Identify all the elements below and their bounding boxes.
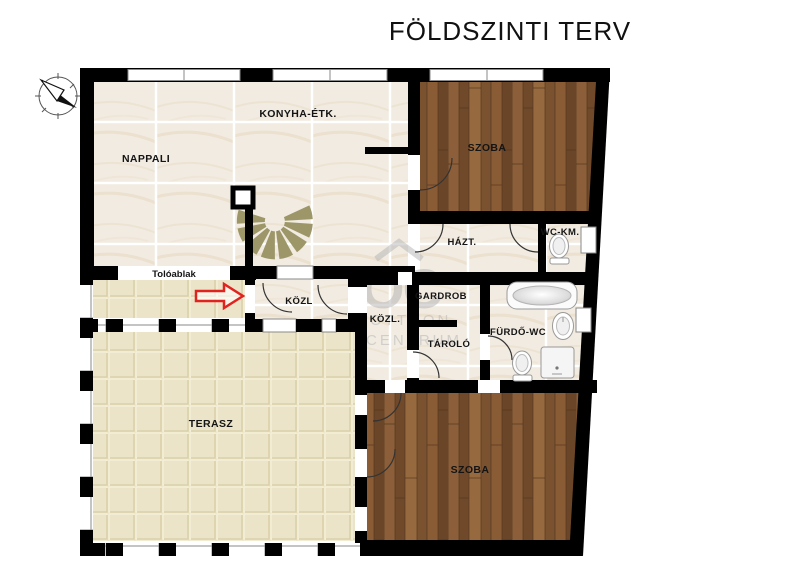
label-terasz: TERASZ (189, 418, 234, 430)
shower-icon (541, 347, 574, 378)
floor-szoba-top (420, 82, 597, 211)
label-hazt: HÁZT. (448, 237, 477, 248)
label-wckm: WC-KM. (541, 227, 580, 238)
label-toloablak: Tolóablak (152, 269, 196, 280)
label-kozl2: KÖZL. (370, 314, 401, 325)
label-szoba-top: SZOBA (468, 142, 507, 154)
toilet-wckm-icon (550, 234, 570, 264)
toilet-furdo-icon (513, 351, 533, 381)
label-szoba-bottom: SZOBA (451, 464, 490, 476)
label-kozl-entry: KÖZL (285, 296, 312, 307)
sink-icon (553, 313, 574, 340)
floor-terasz (92, 331, 355, 541)
floorplan-svg: FÖLDSZINTI TERV N OC OTTHON CENTRUM (0, 0, 800, 585)
floor-plan-page: FÖLDSZINTI TERV N OC OTTHON CENTRUM (0, 0, 800, 585)
label-konyha: KONYHA-ÉTK. (259, 107, 336, 120)
label-nappali: NAPPALI (122, 153, 170, 165)
floors (92, 82, 597, 541)
page-title: FÖLDSZINTI TERV (389, 16, 631, 46)
label-tarolo: TÁROLÓ (428, 338, 471, 350)
bathtub-icon (507, 282, 577, 309)
label-gardrob: GARDROB (415, 291, 467, 302)
label-furdo: FÜRDŐ-WC (490, 326, 546, 338)
